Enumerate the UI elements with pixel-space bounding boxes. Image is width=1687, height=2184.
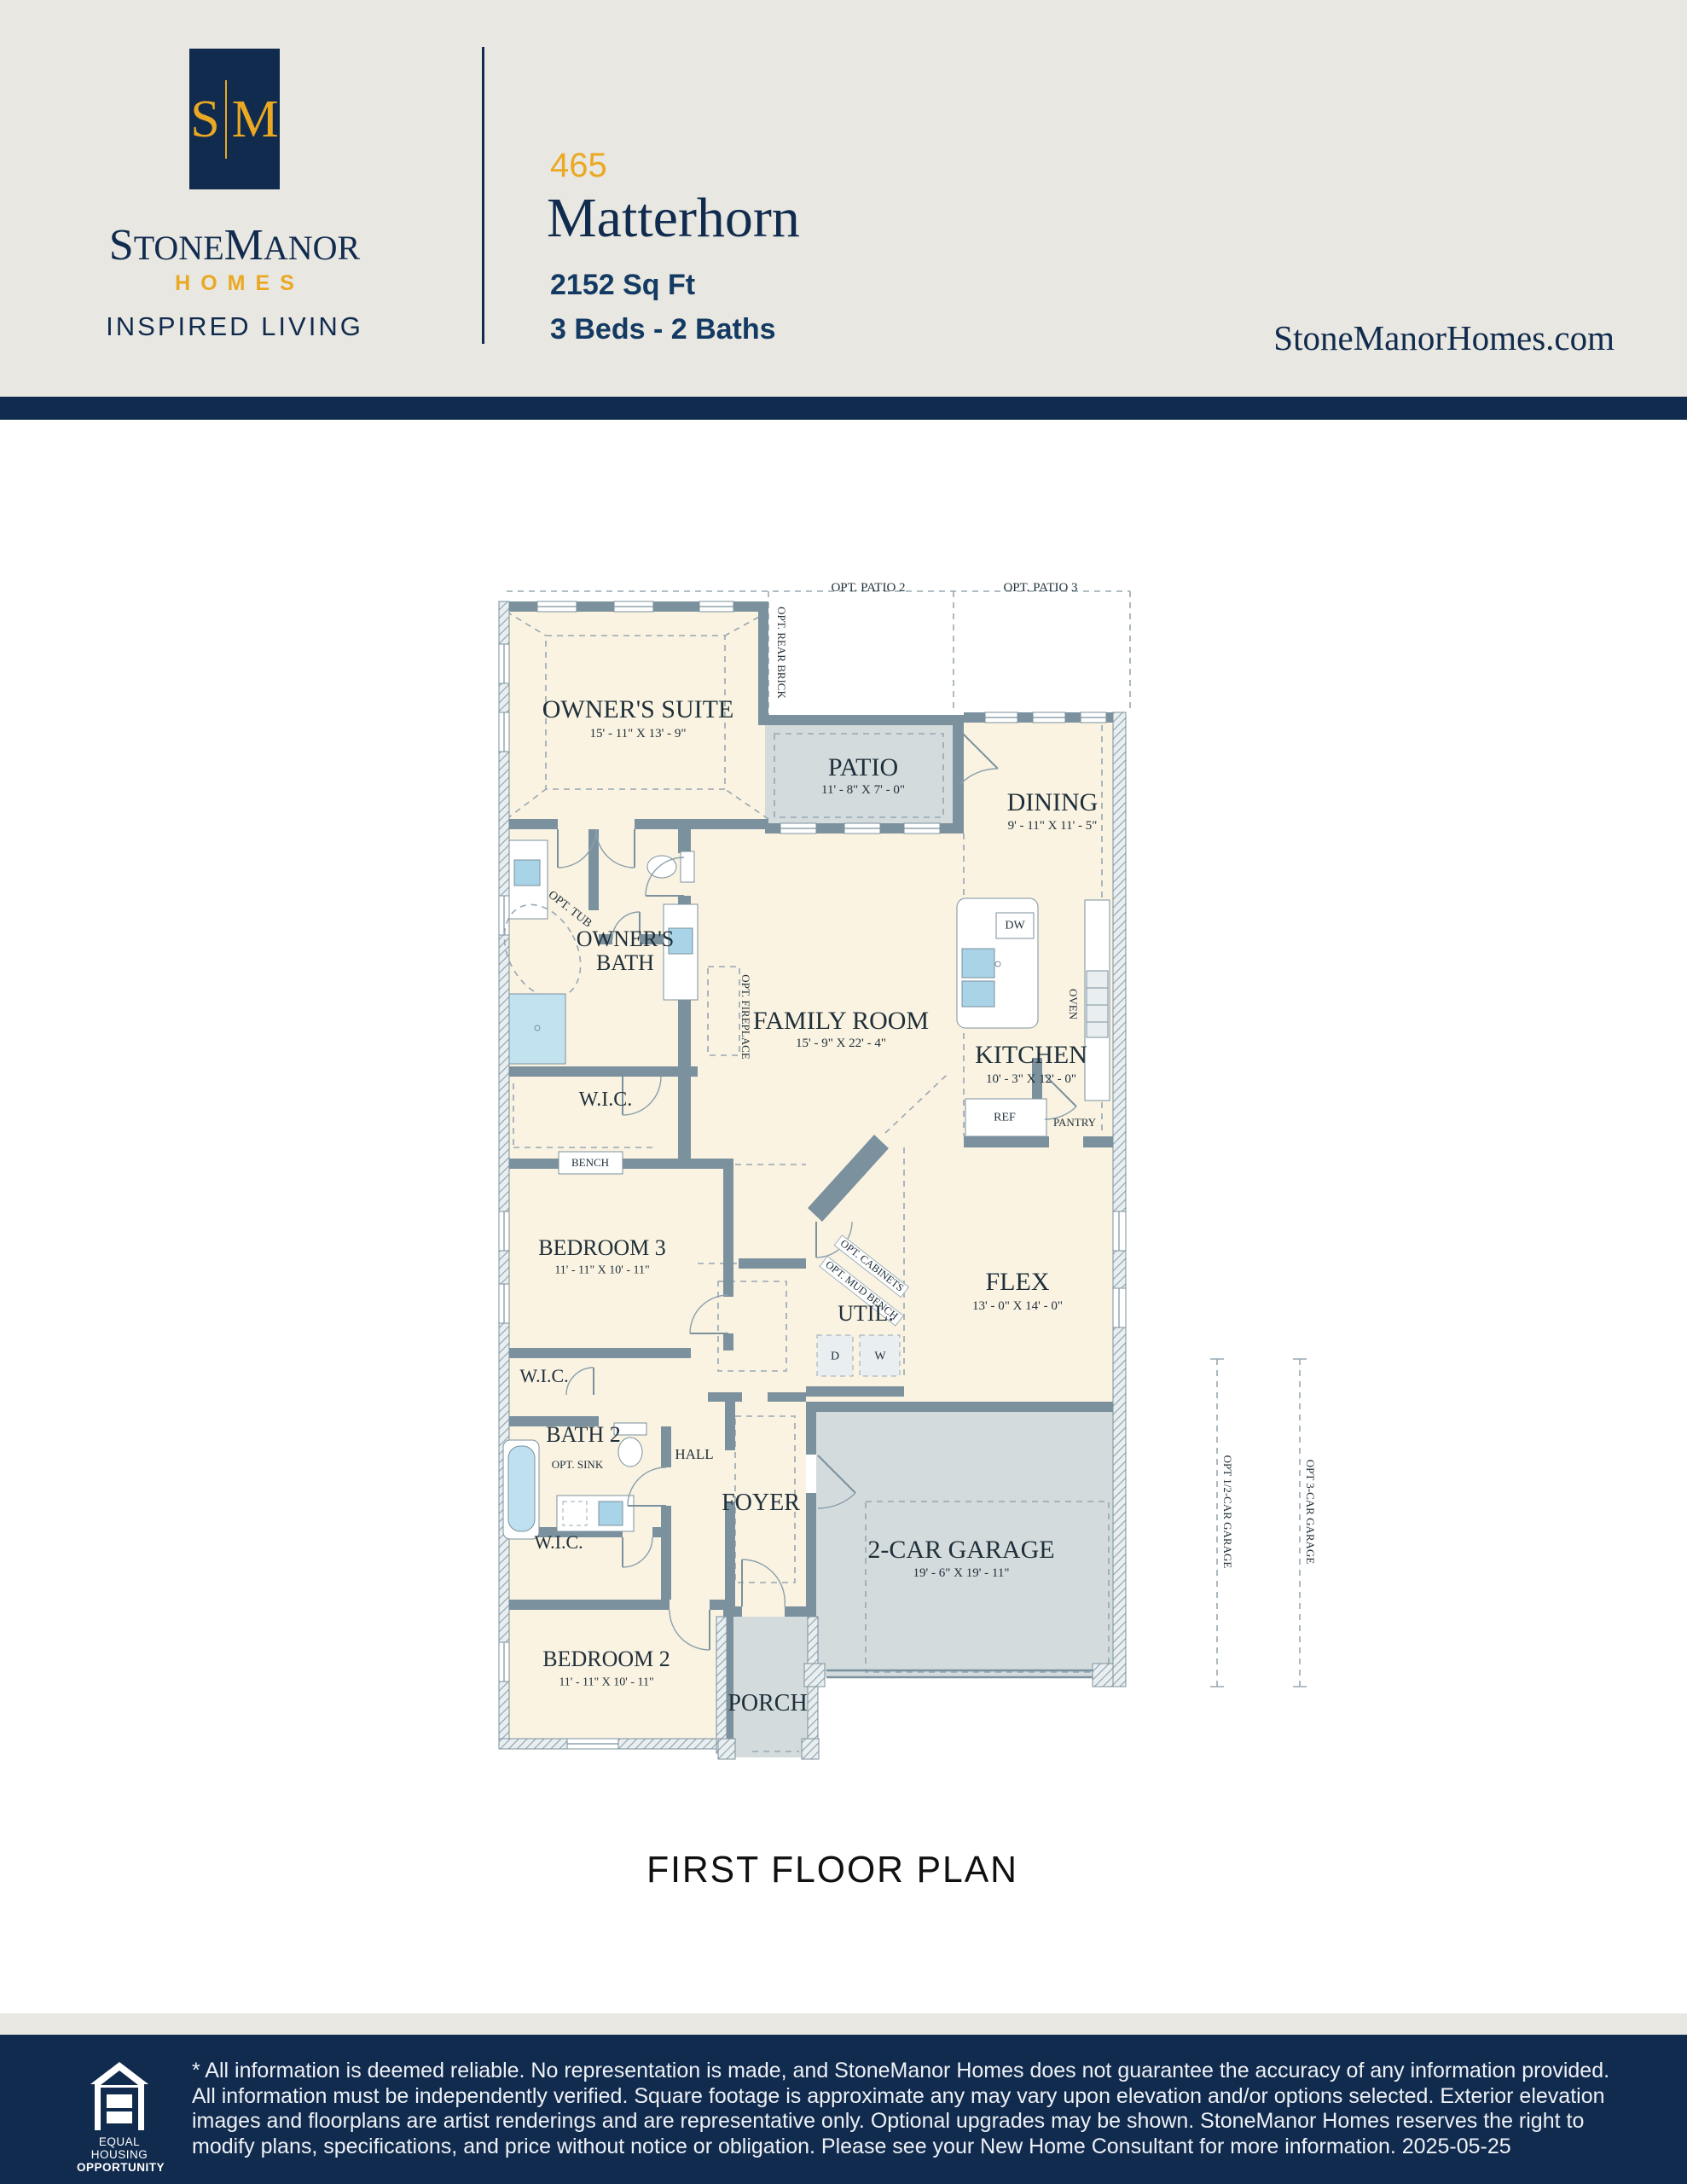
ref-label: REF [994,1111,1016,1124]
room-bedroom2: BEDROOM 2 [542,1647,670,1671]
room-family-room: FAMILY ROOM [753,1008,929,1035]
room-patio: PATIO [828,754,898,781]
brand-anor: ANOR [264,229,360,267]
disclaimer-text: * All information is deemed reliable. No… [192,2059,1625,2159]
room-porch: PORCH [728,1691,807,1716]
opt-half-garage-label: OPT 1/2-CAR GARAGE [1221,1455,1233,1569]
room-bedroom2-dims: 11' - 11" X 10' - 11" [559,1676,653,1688]
header: S M STONEMANOR HOMES INSPIRED LIVING 465… [0,0,1687,397]
opt-patio3-label: OPT. PATIO 3 [1003,581,1077,595]
footer-separator [0,2013,1687,2035]
floor-plan-drawing [486,563,1339,1774]
room-dining-dims: 9' - 11" X 11' - 5" [1008,819,1098,833]
room-bath2: BATH 2 [546,1423,620,1447]
plan-beds-baths: 3 Beds - 2 Baths [550,313,776,346]
plan-number: 465 [550,147,607,185]
room-foyer: FOYER [722,1490,800,1516]
footer: EQUAL HOUSING OPPORTUNITY * All informat… [0,2035,1687,2184]
room-bedroom3: BEDROOM 3 [538,1236,666,1260]
room-bedroom3-dims: 11' - 11" X 10' - 11" [554,1263,649,1276]
room-flex: FLEX [986,1269,1050,1296]
logo-monogram-m: M [232,93,279,146]
floor-plan: OPT. PATIO 2 OPT. PATIO 3 OPT. REAR BRIC… [486,563,1339,1774]
room-owners-suite: OWNER'S SUITE [542,696,734,723]
brand-wordmark: STONEMANOR [0,220,469,270]
logo-monogram-s: S [190,93,219,146]
room-flex-dims: 13' - 0" X 14' - 0" [972,1299,1063,1313]
room-dining: DINING [1007,789,1099,816]
room-wic-bed3: W.I.C. [519,1366,568,1386]
room-patio-dims: 11' - 8" X 7' - 0" [821,783,905,797]
brand-initial-m: M [224,221,264,270]
room-kitchen-dims: 10' - 3" X 12' - 0" [986,1072,1076,1086]
brand-tone: TONE [134,229,224,267]
room-garage-dims: 19' - 6" X 19' - 11" [913,1566,1010,1580]
dw-label: DW [1005,919,1024,932]
room-wic-owners: W.I.C. [579,1089,632,1112]
room-hall: HALL [675,1447,713,1462]
equal-housing-logo: EQUAL HOUSING OPPORTUNITY [77,2062,162,2174]
website-link[interactable]: StoneManorHomes.com [1273,317,1615,358]
plan-caption: FIRST FLOOR PLAN [646,1849,1018,1891]
washer-label: W [874,1350,885,1362]
bench-label: BENCH [571,1157,609,1169]
room-garage: 2-CAR GARAGE [867,1536,1054,1564]
eho-line2: OPPORTUNITY [77,2161,162,2174]
opt-3car-garage-label: OPT 3-CAR GARAGE [1304,1460,1316,1565]
room-kitchen: KITCHEN [975,1042,1087,1069]
equal-housing-icon [80,2062,159,2132]
page-title: Matterhorn [547,186,800,251]
pantry-label: PANTRY [1053,1117,1096,1129]
room-owners-bath: OWNER'S BATH [570,927,681,975]
room-family-room-dims: 15' - 9" X 22' - 4" [796,1037,886,1050]
plan-sqft: 2152 Sq Ft [550,269,695,302]
opt-fireplace-label: OPT. FIREPLACE [739,974,751,1059]
dryer-label: D [831,1350,839,1362]
room-owners-suite-dims: 15' - 11" X 13' - 9" [590,727,687,741]
header-divider [482,47,484,344]
header-rule [0,397,1687,420]
room-wic-bed2: W.I.C. [534,1532,583,1553]
brand-homes: HOMES [0,271,469,296]
brand-initial-s: S [109,221,134,270]
brand-logo: S M [189,49,280,189]
room-util: UTIL. [838,1302,894,1326]
brand-tagline: INSPIRED LIVING [0,311,469,342]
opt-rear-brick-label: OPT. REAR BRICK [775,607,787,699]
opt-patio2-label: OPT. PATIO 2 [831,581,905,595]
opt-sink-label: OPT. SINK [552,1459,603,1471]
logo-divider-line [225,80,227,159]
eho-line1: EQUAL HOUSING [77,2135,162,2161]
oven-label: OVEN [1067,989,1079,1019]
